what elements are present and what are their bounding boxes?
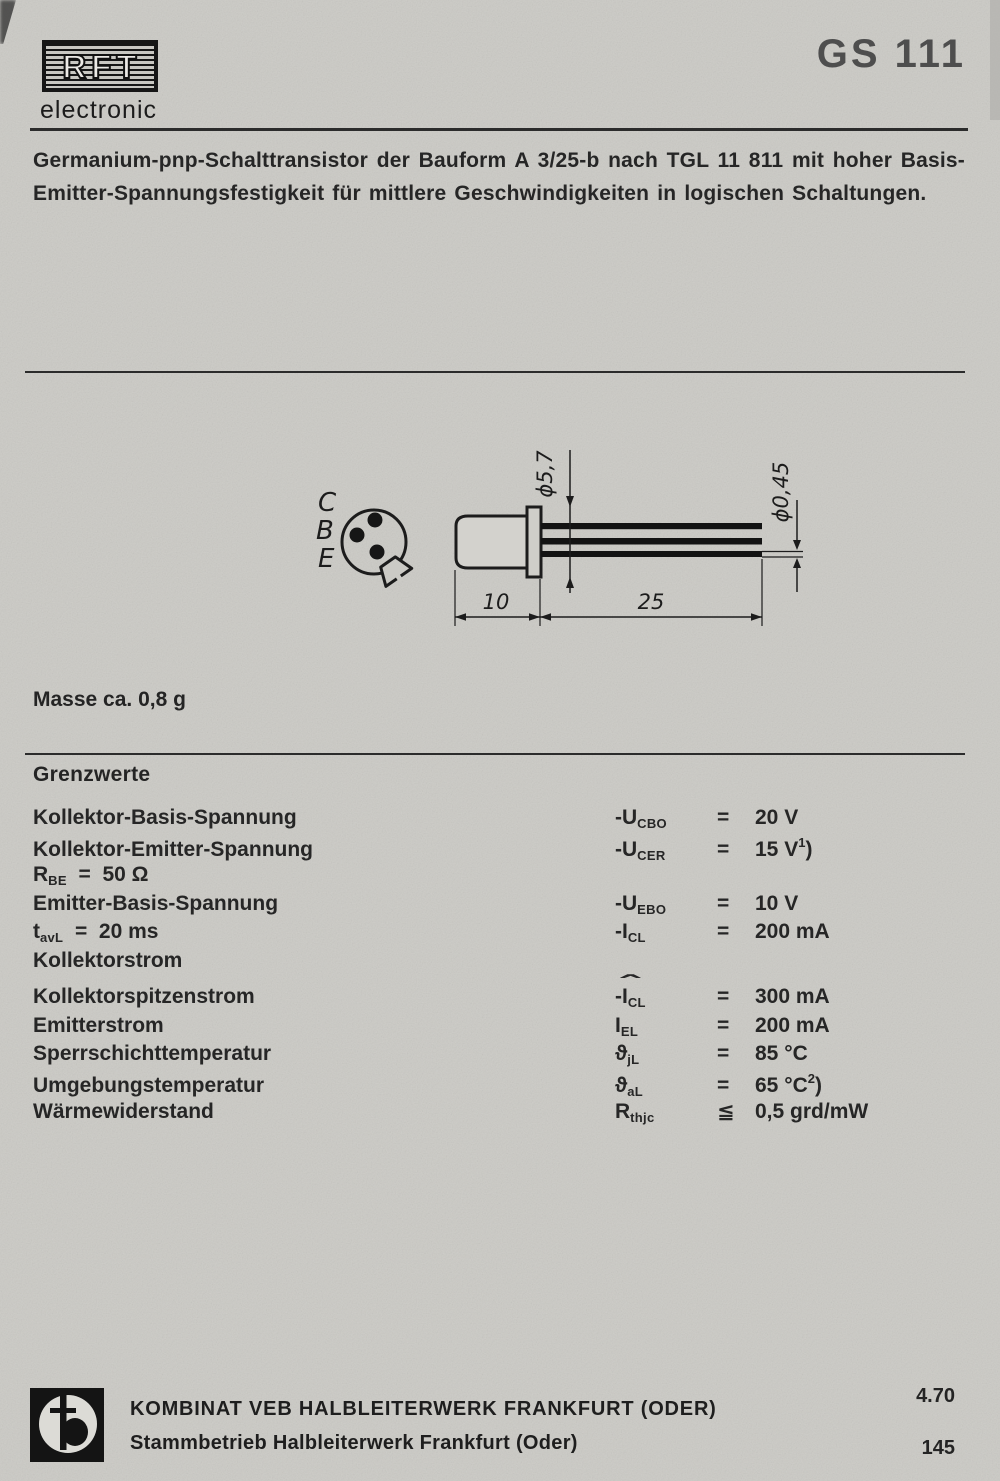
symbol: IEL xyxy=(615,1014,717,1038)
scan-corner-smudge xyxy=(0,0,16,44)
svg-text:10: 10 xyxy=(483,590,510,614)
param-condition: tavL = 20 ms xyxy=(33,920,615,944)
limits-table: Kollektor-Basis-Spannung -UCBO = 20 V Ko… xyxy=(33,806,968,1128)
param-label: Wärmewiderstand xyxy=(33,1100,615,1124)
relation: = xyxy=(717,1014,755,1038)
table-row: Kollektor-Emitter-Spannung -UCER = 15 V1… xyxy=(33,835,968,864)
package-drawing: C B E ϕ5,7 xyxy=(280,430,820,650)
relation: ≦ xyxy=(717,1099,755,1124)
symbol: ϑaL xyxy=(615,1074,717,1098)
company-subline: Stammbetrieb Halbleiterwerk Frankfurt (O… xyxy=(130,1432,578,1455)
table-row: Kollektorstrom xyxy=(33,949,968,978)
symbol: -ICL xyxy=(615,920,717,944)
param-label: Emitter-Basis-Spannung xyxy=(33,892,615,916)
table-row: Umgebungstemperatur ϑaL = 65 °C2) xyxy=(33,1071,968,1100)
relation: = xyxy=(717,1042,755,1066)
lead-emitter xyxy=(541,551,762,557)
table-row: Emitterstrom IEL = 200 mA xyxy=(33,1014,968,1043)
relation: = xyxy=(717,985,755,1009)
symbol: Rthjc xyxy=(615,1100,717,1124)
table-row: Kollektor-Basis-Spannung -UCBO = 20 V xyxy=(33,806,968,835)
svg-text:ϕ0,45: ϕ0,45 xyxy=(769,462,793,523)
mass-note: Masse ca. 0,8 g xyxy=(33,688,186,712)
section-rule-top xyxy=(25,371,965,373)
scan-edge-band xyxy=(990,0,1000,120)
relation: = xyxy=(717,1074,755,1098)
dimension-lead-diameter: ϕ0,45 xyxy=(769,462,801,592)
table-row: Sperrschichttemperatur ϑjL = 85 °C xyxy=(33,1042,968,1071)
datasheet-page: RFT electronic GS 111 Germanium-pnp-Scha… xyxy=(0,0,1000,1481)
section-rule-limits xyxy=(25,753,965,755)
table-row: Wärmewiderstand Rthjc ≦ 0,5 grd/mW xyxy=(33,1099,968,1128)
param-label: Kollektorspitzenstrom xyxy=(33,985,615,1009)
svg-text:25: 25 xyxy=(638,590,665,614)
table-row: Emitter-Basis-Spannung -UEBO = 10 V xyxy=(33,892,968,921)
value: 20 V xyxy=(755,806,968,830)
value: 0,5 grd/mW xyxy=(755,1100,968,1124)
lead-collector xyxy=(541,523,762,529)
hfo-logo xyxy=(30,1388,104,1462)
relation: = xyxy=(717,806,755,830)
table-row: RBE = 50 Ω xyxy=(33,863,968,892)
symbol: -UCER xyxy=(615,838,717,862)
header-rule xyxy=(30,128,968,131)
description-line: Germanium-pnp-Schalttransistor der Baufo… xyxy=(33,144,965,177)
pin-label-c: C xyxy=(318,488,337,518)
relation: = xyxy=(717,892,755,916)
part-number: GS 111 xyxy=(817,32,966,77)
rft-logo: RFT xyxy=(42,40,158,92)
description: Germanium-pnp-Schalttransistor der Baufo… xyxy=(33,144,965,210)
value: 10 V xyxy=(755,892,968,916)
value: 85 °C xyxy=(755,1042,968,1066)
body-outline xyxy=(456,516,527,568)
lead-base xyxy=(541,538,762,545)
symbol: ˆ-ICL xyxy=(615,985,717,1009)
value: 300 mA xyxy=(755,985,968,1009)
param-label: Kollektor-Basis-Spannung xyxy=(33,806,615,830)
pin-dot-b xyxy=(350,528,365,543)
value: 65 °C2) xyxy=(755,1071,968,1098)
pin-dot-e xyxy=(370,545,385,560)
pin-label-b: B xyxy=(316,516,334,546)
param-label: Umgebungstemperatur xyxy=(33,1074,615,1098)
param-condition: RBE = 50 Ω xyxy=(33,863,615,887)
flange xyxy=(527,507,541,577)
company-name: KOMBINAT VEB HALBLEITERWERK FRANKFURT (O… xyxy=(130,1398,717,1421)
relation: = xyxy=(717,920,755,944)
param-label: Kollektorstrom xyxy=(33,949,615,973)
value: 15 V1) xyxy=(755,835,968,862)
param-label: Kollektor-Emitter-Spannung xyxy=(33,838,615,862)
page-number: 145 xyxy=(855,1437,955,1460)
pin-dot-c xyxy=(368,513,383,528)
param-label: Emitterstrom xyxy=(33,1014,615,1038)
param-label: Sperrschichttemperatur xyxy=(33,1042,615,1066)
pin-label-e: E xyxy=(318,544,335,574)
symbol: -UCBO xyxy=(615,806,717,830)
paper-texture xyxy=(0,0,1000,1481)
symbol: -UEBO xyxy=(615,892,717,916)
value: 200 mA xyxy=(755,920,968,944)
relation: = xyxy=(717,838,755,862)
dimension-lead-length: 25 xyxy=(540,559,762,626)
table-row: tavL = 20 ms -ICL = 200 mA xyxy=(33,920,968,949)
description-line: Emitter-Spannungsfestigkeit für mittlere… xyxy=(33,177,965,210)
limits-heading: Grenzwerte xyxy=(33,763,150,787)
brand-subtitle: electronic xyxy=(40,96,157,125)
symbol: ϑjL xyxy=(615,1042,717,1066)
table-row: Kollektorspitzenstrom ˆ-ICL = 300 mA xyxy=(33,985,968,1014)
value: 200 mA xyxy=(755,1014,968,1038)
pinout-circle xyxy=(342,510,412,586)
svg-text:ϕ5,7: ϕ5,7 xyxy=(533,450,557,498)
date-code: 4.70 xyxy=(855,1385,955,1408)
transistor-side-view xyxy=(456,507,803,577)
rft-logo-text: RFT xyxy=(58,50,141,83)
